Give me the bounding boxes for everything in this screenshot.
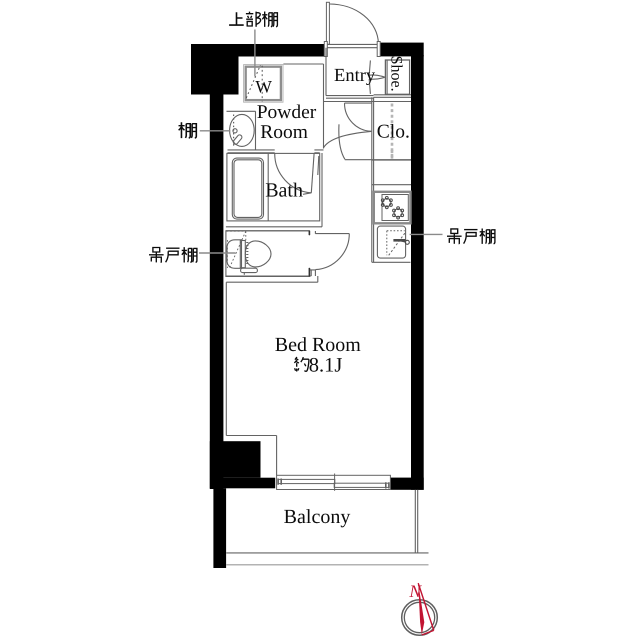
svg-text:Shoe.: Shoe. — [388, 56, 405, 92]
svg-text:Bath: Bath — [265, 179, 303, 201]
svg-text:N: N — [408, 581, 422, 601]
svg-text:Clo.: Clo. — [377, 122, 410, 143]
svg-text:Bed Room: Bed Room — [275, 334, 362, 356]
svg-text:W: W — [255, 77, 272, 97]
svg-text:Room: Room — [260, 122, 308, 143]
svg-text:Balcony: Balcony — [284, 506, 351, 528]
svg-text:Powder: Powder — [257, 102, 317, 123]
svg-text:8.1J: 8.1J — [309, 355, 343, 377]
svg-text:Entry: Entry — [334, 66, 376, 86]
